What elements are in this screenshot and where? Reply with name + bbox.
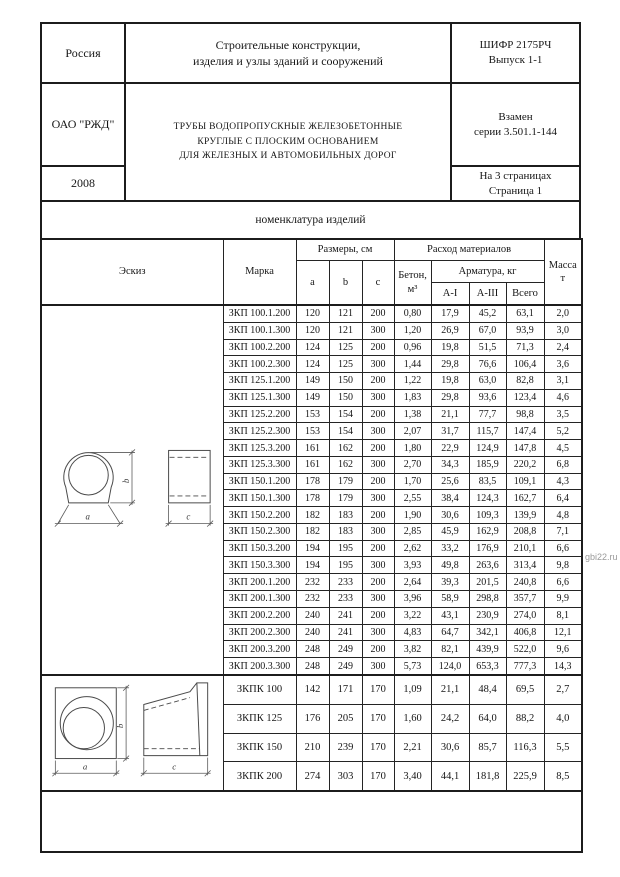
scanned-document-page: { "header": { "country": "Россия", "org"… — [0, 0, 620, 877]
value-cell: 200 — [362, 406, 394, 423]
value-cell: 2,55 — [394, 490, 431, 507]
mark-cell: ЗКП 125.2.300 — [223, 423, 296, 440]
zkpk-sketch-cell: b a c — [41, 675, 223, 791]
value-cell: 182 — [296, 507, 329, 524]
zkpk-side-view — [144, 683, 208, 756]
replaces-label: Взамен — [498, 110, 532, 125]
value-cell: 300 — [362, 423, 394, 440]
value-cell: 183 — [329, 507, 362, 524]
value-cell: 48,4 — [469, 675, 506, 704]
value-cell: 342,1 — [469, 624, 506, 641]
value-cell: 162 — [329, 440, 362, 457]
value-cell: 98,8 — [506, 406, 544, 423]
zkp-cross-section — [64, 453, 113, 503]
value-cell: 240 — [296, 624, 329, 641]
value-cell: 34,3 — [431, 456, 469, 473]
value-cell: 274,0 — [506, 607, 544, 624]
value-cell: 194 — [296, 540, 329, 557]
value-cell: 93,9 — [506, 322, 544, 339]
value-cell: 6,6 — [544, 574, 582, 591]
value-cell: 248 — [296, 658, 329, 675]
value-cell: 38,4 — [431, 490, 469, 507]
value-cell: 121 — [329, 322, 362, 339]
value-cell: 263,6 — [469, 557, 506, 574]
value-cell: 1,20 — [394, 322, 431, 339]
value-cell: 239 — [329, 733, 362, 762]
value-cell: 4,6 — [544, 389, 582, 406]
value-cell: 205 — [329, 704, 362, 733]
dimension-lines: b a c — [55, 449, 213, 526]
value-cell: 150 — [329, 373, 362, 390]
value-cell: 1,38 — [394, 406, 431, 423]
value-cell: 88,2 — [506, 704, 544, 733]
value-cell: 162,7 — [506, 490, 544, 507]
mark-cell: ЗКП 125.3.300 — [223, 456, 296, 473]
value-cell: 179 — [329, 490, 362, 507]
value-cell: 125 — [329, 356, 362, 373]
value-cell: 9,6 — [544, 641, 582, 658]
value-cell: 44,1 — [431, 762, 469, 791]
value-cell: 200 — [362, 373, 394, 390]
value-cell: 45,2 — [469, 305, 506, 322]
value-cell: 200 — [362, 574, 394, 591]
country-cell: Россия — [42, 24, 126, 84]
value-cell: 6,6 — [544, 540, 582, 557]
value-cell: 33,2 — [431, 540, 469, 557]
col-header-mark: Марка — [223, 239, 296, 305]
series-title-line2: изделия и узлы зданий и сооружений — [193, 53, 383, 69]
value-cell: 85,7 — [469, 733, 506, 762]
value-cell: 64,0 — [469, 704, 506, 733]
mark-cell: ЗКП 200.1.200 — [223, 574, 296, 591]
value-cell: 357,7 — [506, 591, 544, 608]
value-cell: 149 — [296, 389, 329, 406]
value-cell: 181,8 — [469, 762, 506, 791]
value-cell: 149 — [296, 373, 329, 390]
value-cell: 300 — [362, 658, 394, 675]
value-cell: 29,8 — [431, 356, 469, 373]
mark-cell: ЗКП 150.3.200 — [223, 540, 296, 557]
value-cell: 25,6 — [431, 473, 469, 490]
value-cell: 300 — [362, 356, 394, 373]
value-cell: 14,3 — [544, 658, 582, 675]
value-cell: 522,0 — [506, 641, 544, 658]
value-cell: 69,5 — [506, 675, 544, 704]
value-cell: 3,93 — [394, 557, 431, 574]
value-cell: 179 — [329, 473, 362, 490]
value-cell: 249 — [329, 658, 362, 675]
value-cell: 1,80 — [394, 440, 431, 457]
dim-label-c: c — [172, 761, 176, 771]
value-cell: 3,5 — [544, 406, 582, 423]
value-cell: 232 — [296, 591, 329, 608]
value-cell: 3,0 — [544, 322, 582, 339]
mark-cell: ЗКП 150.2.200 — [223, 507, 296, 524]
value-cell: 1,44 — [394, 356, 431, 373]
value-cell: 300 — [362, 523, 394, 540]
series-title-line1: Строительные конструкции, — [216, 37, 361, 53]
value-cell: 183 — [329, 523, 362, 540]
value-cell: 31,7 — [431, 423, 469, 440]
value-cell: 1,60 — [394, 704, 431, 733]
mass-label: Масса — [549, 260, 577, 271]
value-cell: 147,8 — [506, 440, 544, 457]
product-title-line2: КРУГЛЫЕ С ПЛОСКИМ ОСНОВАНИЕМ — [197, 135, 378, 150]
value-cell: 153 — [296, 423, 329, 440]
value-cell: 200 — [362, 339, 394, 356]
value-cell: 1,70 — [394, 473, 431, 490]
value-cell: 210,1 — [506, 540, 544, 557]
mark-cell: ЗКП 150.2.300 — [223, 523, 296, 540]
value-cell: 67,0 — [469, 322, 506, 339]
value-cell: 313,4 — [506, 557, 544, 574]
empty-footer-row — [41, 791, 582, 852]
col-header-rebar-total: Всего — [506, 283, 544, 306]
value-cell: 49,8 — [431, 557, 469, 574]
section-title-label: номенклатура изделий — [255, 214, 365, 226]
value-cell: 200 — [362, 540, 394, 557]
value-cell: 8,5 — [544, 762, 582, 791]
value-cell: 142 — [296, 675, 329, 704]
value-cell: 300 — [362, 490, 394, 507]
watermark: gbi22.ru — [585, 552, 618, 562]
dim-label-c: c — [186, 512, 190, 522]
value-cell: 153 — [296, 406, 329, 423]
organization-label: ОАО "РЖД" — [52, 116, 115, 132]
value-cell: 121 — [329, 305, 362, 322]
value-cell: 124,3 — [469, 490, 506, 507]
mark-cell: ЗКП 200.2.300 — [223, 624, 296, 641]
value-cell: 170 — [362, 704, 394, 733]
col-group-dimensions: Размеры, см — [296, 239, 394, 261]
value-cell: 124,9 — [469, 440, 506, 457]
value-cell: 303 — [329, 762, 362, 791]
col-group-materials: Расход материалов — [394, 239, 544, 261]
value-cell: 26,9 — [431, 322, 469, 339]
value-cell: 208,8 — [506, 523, 544, 540]
value-cell: 2,70 — [394, 456, 431, 473]
value-cell: 1,83 — [394, 389, 431, 406]
value-cell: 39,3 — [431, 574, 469, 591]
col-header-b: b — [329, 261, 362, 306]
value-cell: 230,9 — [469, 607, 506, 624]
value-cell: 125 — [329, 339, 362, 356]
value-cell: 30,6 — [431, 733, 469, 762]
zkpk-front-view — [55, 688, 116, 759]
value-cell: 2,21 — [394, 733, 431, 762]
col-header-c: c — [362, 261, 394, 306]
value-cell: 154 — [329, 406, 362, 423]
value-cell: 171 — [329, 675, 362, 704]
country-label: Россия — [65, 45, 100, 61]
table-header: Эскиз Марка Размеры, см Расход материало… — [41, 239, 582, 305]
col-header-sketch: Эскиз — [41, 239, 223, 305]
value-cell: 162 — [329, 456, 362, 473]
value-cell: 9,8 — [544, 557, 582, 574]
mark-cell: ЗКП 150.3.300 — [223, 557, 296, 574]
value-cell: 0,96 — [394, 339, 431, 356]
value-cell: 200 — [362, 641, 394, 658]
value-cell: 154 — [329, 423, 362, 440]
zkpk-rows-section: b a c ЗКПК 1001421711701,0921,148,469,52… — [41, 675, 582, 791]
value-cell: 21,1 — [431, 675, 469, 704]
value-cell: 182 — [296, 523, 329, 540]
value-cell: 3,40 — [394, 762, 431, 791]
value-cell: 21,1 — [431, 406, 469, 423]
value-cell: 232 — [296, 574, 329, 591]
value-cell: 71,3 — [506, 339, 544, 356]
value-cell: 170 — [362, 762, 394, 791]
zkp-sketch-cell: b a c — [41, 305, 223, 675]
value-cell: 3,6 — [544, 356, 582, 373]
value-cell: 241 — [329, 624, 362, 641]
value-cell: 176 — [296, 704, 329, 733]
value-cell: 233 — [329, 574, 362, 591]
value-cell: 1,09 — [394, 675, 431, 704]
col-header-mass: Масса т — [544, 239, 582, 305]
value-cell: 109,3 — [469, 507, 506, 524]
value-cell: 3,1 — [544, 373, 582, 390]
value-cell: 83,5 — [469, 473, 506, 490]
value-cell: 29,8 — [431, 389, 469, 406]
value-cell: 12,1 — [544, 624, 582, 641]
value-cell: 93,6 — [469, 389, 506, 406]
value-cell: 200 — [362, 440, 394, 457]
value-cell: 6,4 — [544, 490, 582, 507]
value-cell: 274 — [296, 762, 329, 791]
pages-count: На 3 страницах — [479, 169, 551, 184]
value-cell: 300 — [362, 389, 394, 406]
value-cell: 120 — [296, 305, 329, 322]
value-cell: 4,8 — [544, 507, 582, 524]
value-cell: 109,1 — [506, 473, 544, 490]
issue-number: Выпуск 1-1 — [489, 53, 543, 68]
mark-cell: ЗКП 125.2.200 — [223, 406, 296, 423]
product-title-cell: ТРУБЫ ВОДОПРОПУСКНЫЕ ЖЕЛЕЗОБЕТОННЫЕ КРУГ… — [126, 84, 452, 200]
value-cell: 19,8 — [431, 373, 469, 390]
page-number: Страница 1 — [489, 184, 542, 199]
value-cell: 6,8 — [544, 456, 582, 473]
document-frame: Россия Строительные конструкции, изделия… — [40, 22, 581, 853]
value-cell: 777,3 — [506, 658, 544, 675]
value-cell: 51,5 — [469, 339, 506, 356]
col-header-a: a — [296, 261, 329, 306]
zkpk-pipe-sketch: b a c — [42, 676, 222, 790]
zkp-rows-section: b a c ЗКП 100.1.2001201212000,8017,945,2… — [41, 305, 582, 675]
value-cell: 43,1 — [431, 607, 469, 624]
col-header-rebar-aiii: A-III — [469, 283, 506, 306]
value-cell: 200 — [362, 473, 394, 490]
mark-cell: ЗКП 200.3.300 — [223, 658, 296, 675]
dim-label-a: a — [86, 512, 91, 522]
value-cell: 17,9 — [431, 305, 469, 322]
value-cell: 139,9 — [506, 507, 544, 524]
value-cell: 5,73 — [394, 658, 431, 675]
value-cell: 1,90 — [394, 507, 431, 524]
value-cell: 225,9 — [506, 762, 544, 791]
value-cell: 240,8 — [506, 574, 544, 591]
value-cell: 5,5 — [544, 733, 582, 762]
value-cell: 2,4 — [544, 339, 582, 356]
mark-cell: ЗКП 100.1.200 — [223, 305, 296, 322]
value-cell: 300 — [362, 456, 394, 473]
mark-cell: ЗКП 100.1.300 — [223, 322, 296, 339]
value-cell: 2,0 — [544, 305, 582, 322]
mark-cell: ЗКПК 200 — [223, 762, 296, 791]
value-cell: 3,22 — [394, 607, 431, 624]
replaces-cell: Взамен серии 3.501.1-144 — [452, 84, 579, 167]
mark-cell: ЗКПК 125 — [223, 704, 296, 733]
title-block: Россия Строительные конструкции, изделия… — [40, 22, 581, 202]
mass-unit: т — [561, 273, 566, 284]
year-label: 2008 — [71, 175, 95, 191]
value-cell: 123,4 — [506, 389, 544, 406]
products-table: Эскиз Марка Размеры, см Расход материало… — [40, 238, 583, 853]
value-cell: 170 — [362, 675, 394, 704]
value-cell: 124 — [296, 339, 329, 356]
value-cell: 64,7 — [431, 624, 469, 641]
value-cell: 24,2 — [431, 704, 469, 733]
section-title: номенклатура изделий — [40, 202, 581, 238]
value-cell: 4,5 — [544, 440, 582, 457]
value-cell: 300 — [362, 322, 394, 339]
value-cell: 300 — [362, 624, 394, 641]
value-cell: 4,0 — [544, 704, 582, 733]
mark-cell: ЗКПК 100 — [223, 675, 296, 704]
value-cell: 161 — [296, 440, 329, 457]
value-cell: 124,0 — [431, 658, 469, 675]
value-cell: 2,07 — [394, 423, 431, 440]
mark-cell: ЗКП 100.2.200 — [223, 339, 296, 356]
mark-cell: ЗКП 125.1.200 — [223, 373, 296, 390]
value-cell: 200 — [362, 607, 394, 624]
dim-label-b: b — [121, 478, 131, 483]
value-cell: 82,8 — [506, 373, 544, 390]
value-cell: 3,82 — [394, 641, 431, 658]
value-cell: 161 — [296, 456, 329, 473]
zkp-pipe-sketch: b a c — [42, 306, 222, 674]
value-cell: 2,7 — [544, 675, 582, 704]
value-cell: 8,1 — [544, 607, 582, 624]
value-cell: 106,4 — [506, 356, 544, 373]
value-cell: 63,1 — [506, 305, 544, 322]
value-cell: 116,3 — [506, 733, 544, 762]
value-cell: 406,8 — [506, 624, 544, 641]
dim-label-b: b — [115, 723, 125, 728]
value-cell: 178 — [296, 473, 329, 490]
value-cell: 162,9 — [469, 523, 506, 540]
product-title-line3: ДЛЯ ЖЕЛЕЗНЫХ И АВТОМОБИЛЬНЫХ ДОРОГ — [179, 149, 396, 164]
value-cell: 58,9 — [431, 591, 469, 608]
value-cell: 170 — [362, 733, 394, 762]
value-cell: 200 — [362, 305, 394, 322]
value-cell: 120 — [296, 322, 329, 339]
value-cell: 3,96 — [394, 591, 431, 608]
concrete-unit: м³ — [408, 284, 418, 295]
value-cell: 178 — [296, 490, 329, 507]
value-cell: 115,7 — [469, 423, 506, 440]
value-cell: 9,9 — [544, 591, 582, 608]
value-cell: 77,7 — [469, 406, 506, 423]
value-cell: 249 — [329, 641, 362, 658]
replaced-series: серии 3.501.1-144 — [474, 125, 557, 140]
value-cell: 150 — [329, 389, 362, 406]
value-cell: 176,9 — [469, 540, 506, 557]
mark-cell: ЗКП 200.1.300 — [223, 591, 296, 608]
value-cell: 300 — [362, 557, 394, 574]
value-cell: 1,22 — [394, 373, 431, 390]
empty-footer-cell — [41, 791, 582, 852]
value-cell: 19,8 — [431, 339, 469, 356]
value-cell: 195 — [329, 557, 362, 574]
value-cell: 4,83 — [394, 624, 431, 641]
cipher-code: ШИФР 2175РЧ — [480, 38, 552, 53]
mark-cell: ЗКП 150.1.200 — [223, 473, 296, 490]
product-title-line1: ТРУБЫ ВОДОПРОПУСКНЫЕ ЖЕЛЕЗОБЕТОННЫЕ — [174, 120, 403, 135]
year-cell: 2008 — [42, 167, 126, 200]
dim-label-a: a — [83, 761, 88, 771]
value-cell: 5,2 — [544, 423, 582, 440]
organization-cell: ОАО "РЖД" — [42, 84, 126, 167]
value-cell: 22,9 — [431, 440, 469, 457]
footer-section — [41, 791, 582, 852]
value-cell: 4,3 — [544, 473, 582, 490]
pages-cell: На 3 страницах Страница 1 — [452, 167, 579, 200]
value-cell: 195 — [329, 540, 362, 557]
value-cell: 220,2 — [506, 456, 544, 473]
mark-cell: ЗКП 100.2.300 — [223, 356, 296, 373]
col-header-rebar-ai: A-I — [431, 283, 469, 306]
mark-cell: ЗКП 200.2.200 — [223, 607, 296, 624]
value-cell: 240 — [296, 607, 329, 624]
value-cell: 233 — [329, 591, 362, 608]
mark-cell: ЗКП 200.3.200 — [223, 641, 296, 658]
value-cell: 653,3 — [469, 658, 506, 675]
value-cell: 63,0 — [469, 373, 506, 390]
value-cell: 241 — [329, 607, 362, 624]
value-cell: 147,4 — [506, 423, 544, 440]
zkp-side-view — [169, 450, 211, 502]
value-cell: 200 — [362, 507, 394, 524]
mark-cell: ЗКП 125.1.300 — [223, 389, 296, 406]
table-row: b a c ЗКП 100.1.2001201212000,8017,945,2… — [41, 305, 582, 322]
value-cell: 185,9 — [469, 456, 506, 473]
table-row: b a c ЗКПК 1001421711701,0921,148,469,52… — [41, 675, 582, 704]
value-cell: 0,80 — [394, 305, 431, 322]
value-cell: 248 — [296, 641, 329, 658]
col-header-concrete: Бетон, м³ — [394, 261, 431, 306]
value-cell: 30,6 — [431, 507, 469, 524]
value-cell: 194 — [296, 557, 329, 574]
value-cell: 7,1 — [544, 523, 582, 540]
value-cell: 439,9 — [469, 641, 506, 658]
value-cell: 201,5 — [469, 574, 506, 591]
value-cell: 124 — [296, 356, 329, 373]
concrete-label: Бетон, — [398, 270, 427, 281]
col-group-rebar: Арматура, кг — [431, 261, 544, 283]
mark-cell: ЗКП 125.3.200 — [223, 440, 296, 457]
value-cell: 210 — [296, 733, 329, 762]
value-cell: 298,8 — [469, 591, 506, 608]
value-cell: 2,64 — [394, 574, 431, 591]
value-cell: 82,1 — [431, 641, 469, 658]
series-title-cell: Строительные конструкции, изделия и узлы… — [126, 24, 452, 84]
value-cell: 300 — [362, 591, 394, 608]
value-cell: 2,62 — [394, 540, 431, 557]
value-cell: 2,85 — [394, 523, 431, 540]
mark-cell: ЗКПК 150 — [223, 733, 296, 762]
cipher-cell: ШИФР 2175РЧ Выпуск 1-1 — [452, 24, 579, 84]
